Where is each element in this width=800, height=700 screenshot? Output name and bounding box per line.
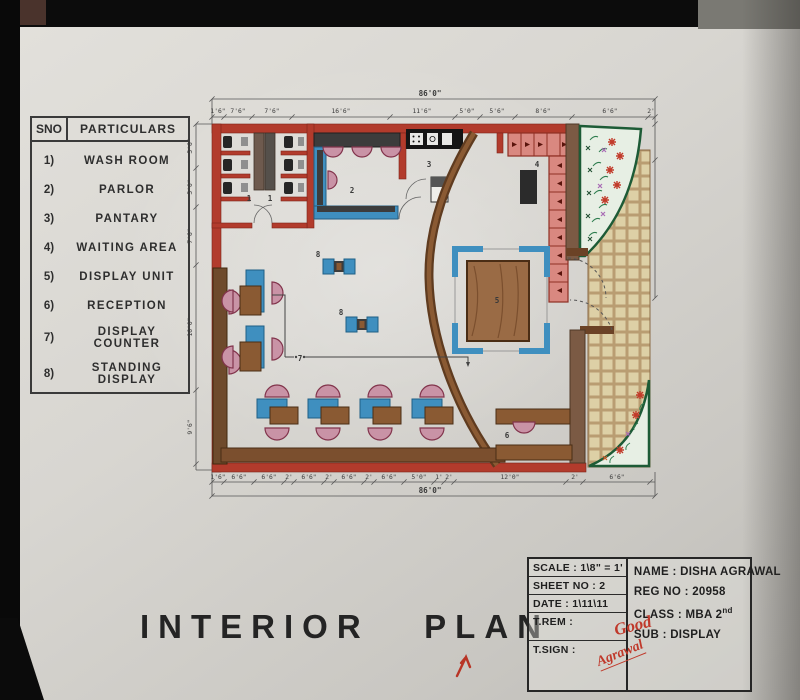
pantry-door-swing <box>406 179 426 199</box>
legend-row-label: PARLOR <box>66 184 188 196</box>
room-number-labels: 1 1 2 3 4 5 6 7 8 8 <box>247 160 540 440</box>
class-line: CLASS : MBA 2nd <box>634 606 781 621</box>
red-check-mark <box>452 650 478 680</box>
svg-text:6'6": 6'6" <box>602 108 617 115</box>
sheet-title: INTERIOR PLAN <box>140 608 550 646</box>
floor-plan-drawing: 86'0" 86'0" 1'6" 7'6" 7'6" 16'6" 11'6" 5… <box>185 68 685 513</box>
legend-row-label: RECEPTION <box>66 300 188 312</box>
legend-row-no: 1) <box>32 155 66 167</box>
sofa-right <box>549 156 568 302</box>
svg-text:16'0": 16'0" <box>187 318 194 337</box>
svg-text:5'0": 5'0" <box>411 474 426 481</box>
svg-text:6'6": 6'6" <box>609 474 624 481</box>
legend-row-label: DISPLAY UNIT <box>66 271 188 283</box>
legend-row-no: 7) <box>32 332 66 344</box>
door-jamb-upper <box>566 248 588 256</box>
photo-dark-border-top <box>0 0 698 27</box>
legend-row: 8)STANDING DISPLAY <box>32 356 188 392</box>
legend-row: 6)RECEPTION <box>32 291 188 320</box>
desk-station <box>257 385 298 440</box>
svg-text:2': 2' <box>647 108 655 115</box>
legend-row: 5)DISPLAY UNIT <box>32 262 188 291</box>
reception-counter <box>496 445 572 460</box>
legend-row-label: STANDING DISPLAY <box>66 362 188 386</box>
legend-row-no: 2) <box>32 184 66 196</box>
legend-row-no: 3) <box>32 213 66 225</box>
washroom-door-panel <box>254 133 264 190</box>
legend-row-label: PANTARY <box>66 213 188 225</box>
counter-wood <box>240 342 261 371</box>
sink <box>427 133 438 145</box>
svg-text:5: 5 <box>495 296 500 305</box>
scale-row: SCALE : 1\8" = 1' <box>529 559 626 577</box>
svg-text:1'6": 1'6" <box>210 108 225 115</box>
washroom-door-swings <box>254 205 272 223</box>
svg-text:5'6": 5'6" <box>489 108 504 115</box>
legend-row: 3)PANTARY <box>32 204 188 233</box>
legend-row-no: 8) <box>32 368 66 380</box>
chair <box>513 422 535 433</box>
svg-text:1: 1 <box>247 194 252 203</box>
parlor-counter-bottom-top <box>317 206 395 212</box>
svg-text:8: 8 <box>316 250 321 259</box>
desk-station <box>360 385 401 440</box>
svg-text:86'0": 86'0" <box>419 486 442 495</box>
svg-text:11'6": 11'6" <box>413 108 432 115</box>
wall-right-lower <box>570 330 585 463</box>
svg-text:8: 8 <box>339 308 344 317</box>
svg-text:5'0": 5'0" <box>459 108 474 115</box>
svg-text:7: 7 <box>298 354 303 363</box>
parlor-counter-top <box>314 133 400 147</box>
legend-body: 1)WASH ROOM 2)PARLOR 3)PANTARY 4)WAITING… <box>32 142 188 392</box>
date-row: DATE : 1\11\11 <box>529 595 626 613</box>
svg-text:2': 2' <box>445 474 453 481</box>
svg-text:5'0": 5'0" <box>187 179 194 194</box>
counter-unit <box>442 133 452 145</box>
svg-text:2': 2' <box>365 474 373 481</box>
svg-text:7'6": 7'6" <box>230 108 245 115</box>
svg-text:6'6": 6'6" <box>261 474 276 481</box>
parlor-stools <box>323 147 401 189</box>
legend-row-no: 6) <box>32 300 66 312</box>
legend-table: SNO PARTICULARS 1)WASH ROOM 2)PARLOR 3)P… <box>30 116 190 394</box>
svg-text:3: 3 <box>427 160 432 169</box>
display-counter-station <box>222 326 283 371</box>
svg-text:2': 2' <box>325 474 333 481</box>
standing-display-stand <box>346 317 378 332</box>
svg-text:8'6": 8'6" <box>535 108 550 115</box>
bottom-display-platform <box>221 448 505 462</box>
svg-text:2': 2' <box>285 474 293 481</box>
sheet-row: SHEET NO : 2 <box>529 577 626 595</box>
svg-text:6'6": 6'6" <box>301 474 316 481</box>
parlor-counter-left-top <box>317 150 323 205</box>
waiting-table <box>520 170 537 204</box>
desk-station <box>308 385 349 440</box>
legend-row-label: WAITING AREA <box>66 242 188 254</box>
subject-line: SUB : DISPLAY <box>634 629 781 641</box>
teacher-remark-row: T.REM : <box>529 613 626 641</box>
standing-display-stand <box>323 259 355 274</box>
svg-text:6'6": 6'6" <box>381 474 396 481</box>
svg-text:4: 4 <box>535 160 540 169</box>
photo-border-top-right <box>698 0 800 29</box>
parlor-door-swing <box>399 197 421 219</box>
reg-no: REG NO : 20958 <box>634 586 781 598</box>
svg-text:2': 2' <box>571 474 579 481</box>
legend-header: SNO PARTICULARS <box>32 118 188 142</box>
svg-text:16'6": 16'6" <box>332 108 351 115</box>
svg-text:9'6": 9'6" <box>187 419 194 434</box>
legend-row-no: 4) <box>32 242 66 254</box>
svg-text:86'0": 86'0" <box>419 89 442 98</box>
photo-dark-border-left <box>0 0 20 700</box>
desk-row <box>257 385 453 440</box>
svg-text:7'6": 7'6" <box>264 108 279 115</box>
wall-right-upper <box>566 124 579 260</box>
legend-row: 2)PARLOR <box>32 175 188 204</box>
svg-text:1'6": 1'6" <box>210 474 225 481</box>
svg-text:6: 6 <box>505 431 510 440</box>
legend-row-no: 5) <box>32 271 66 283</box>
counter-wood <box>240 286 261 315</box>
legend-header-particulars: PARTICULARS <box>68 122 188 136</box>
legend-row: 4)WAITING AREA <box>32 233 188 262</box>
svg-text:7'6": 7'6" <box>187 228 194 243</box>
photo-of-interior-plan-sheet: { "title": "INTERIOR PLAN", "legend": { … <box>0 0 800 700</box>
legend-row-label: WASH ROOM <box>66 155 188 167</box>
svg-text:2: 2 <box>350 186 355 195</box>
chair <box>272 338 283 360</box>
svg-text:1: 1 <box>268 194 273 203</box>
chair <box>272 282 283 304</box>
svg-text:6'6": 6'6" <box>231 474 246 481</box>
legend-row-label: DISPLAY COUNTER <box>66 326 188 350</box>
legend-header-sno: SNO <box>32 118 68 140</box>
svg-text:6'6": 6'6" <box>341 474 356 481</box>
desk-station <box>412 385 453 440</box>
legend-row: 7)DISPLAY COUNTER <box>32 320 188 356</box>
central-display-table <box>455 249 547 351</box>
stove <box>410 133 423 145</box>
student-name: NAME : DISHA AGRAWAL <box>634 566 781 578</box>
class-superscript: nd <box>722 606 732 615</box>
svg-text:12'0": 12'0" <box>501 474 520 481</box>
svg-text:1': 1' <box>435 474 443 481</box>
display-counter-station <box>222 270 283 315</box>
washroom-door-panel <box>265 133 275 190</box>
svg-text:5'6": 5'6" <box>187 138 194 153</box>
legend-row: 1)WASH ROOM <box>32 146 188 175</box>
